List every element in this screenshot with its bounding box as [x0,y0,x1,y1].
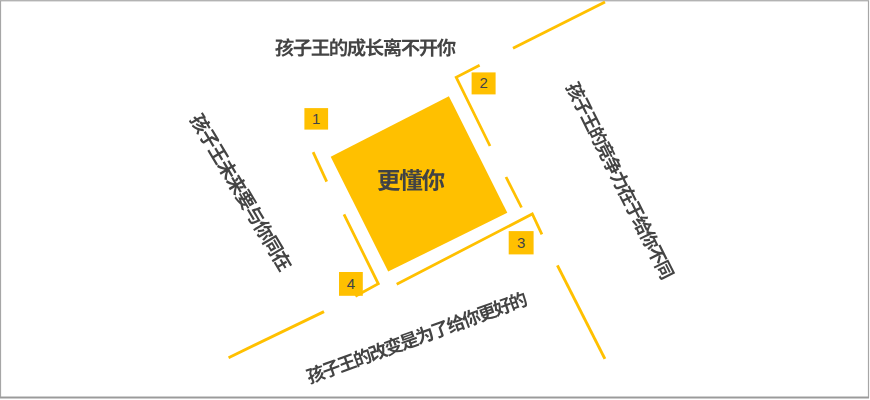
svg-text:2: 2 [479,74,487,91]
svg-text:3: 3 [517,234,525,251]
svg-text:1: 1 [312,110,320,127]
svg-text:4: 4 [347,275,355,292]
